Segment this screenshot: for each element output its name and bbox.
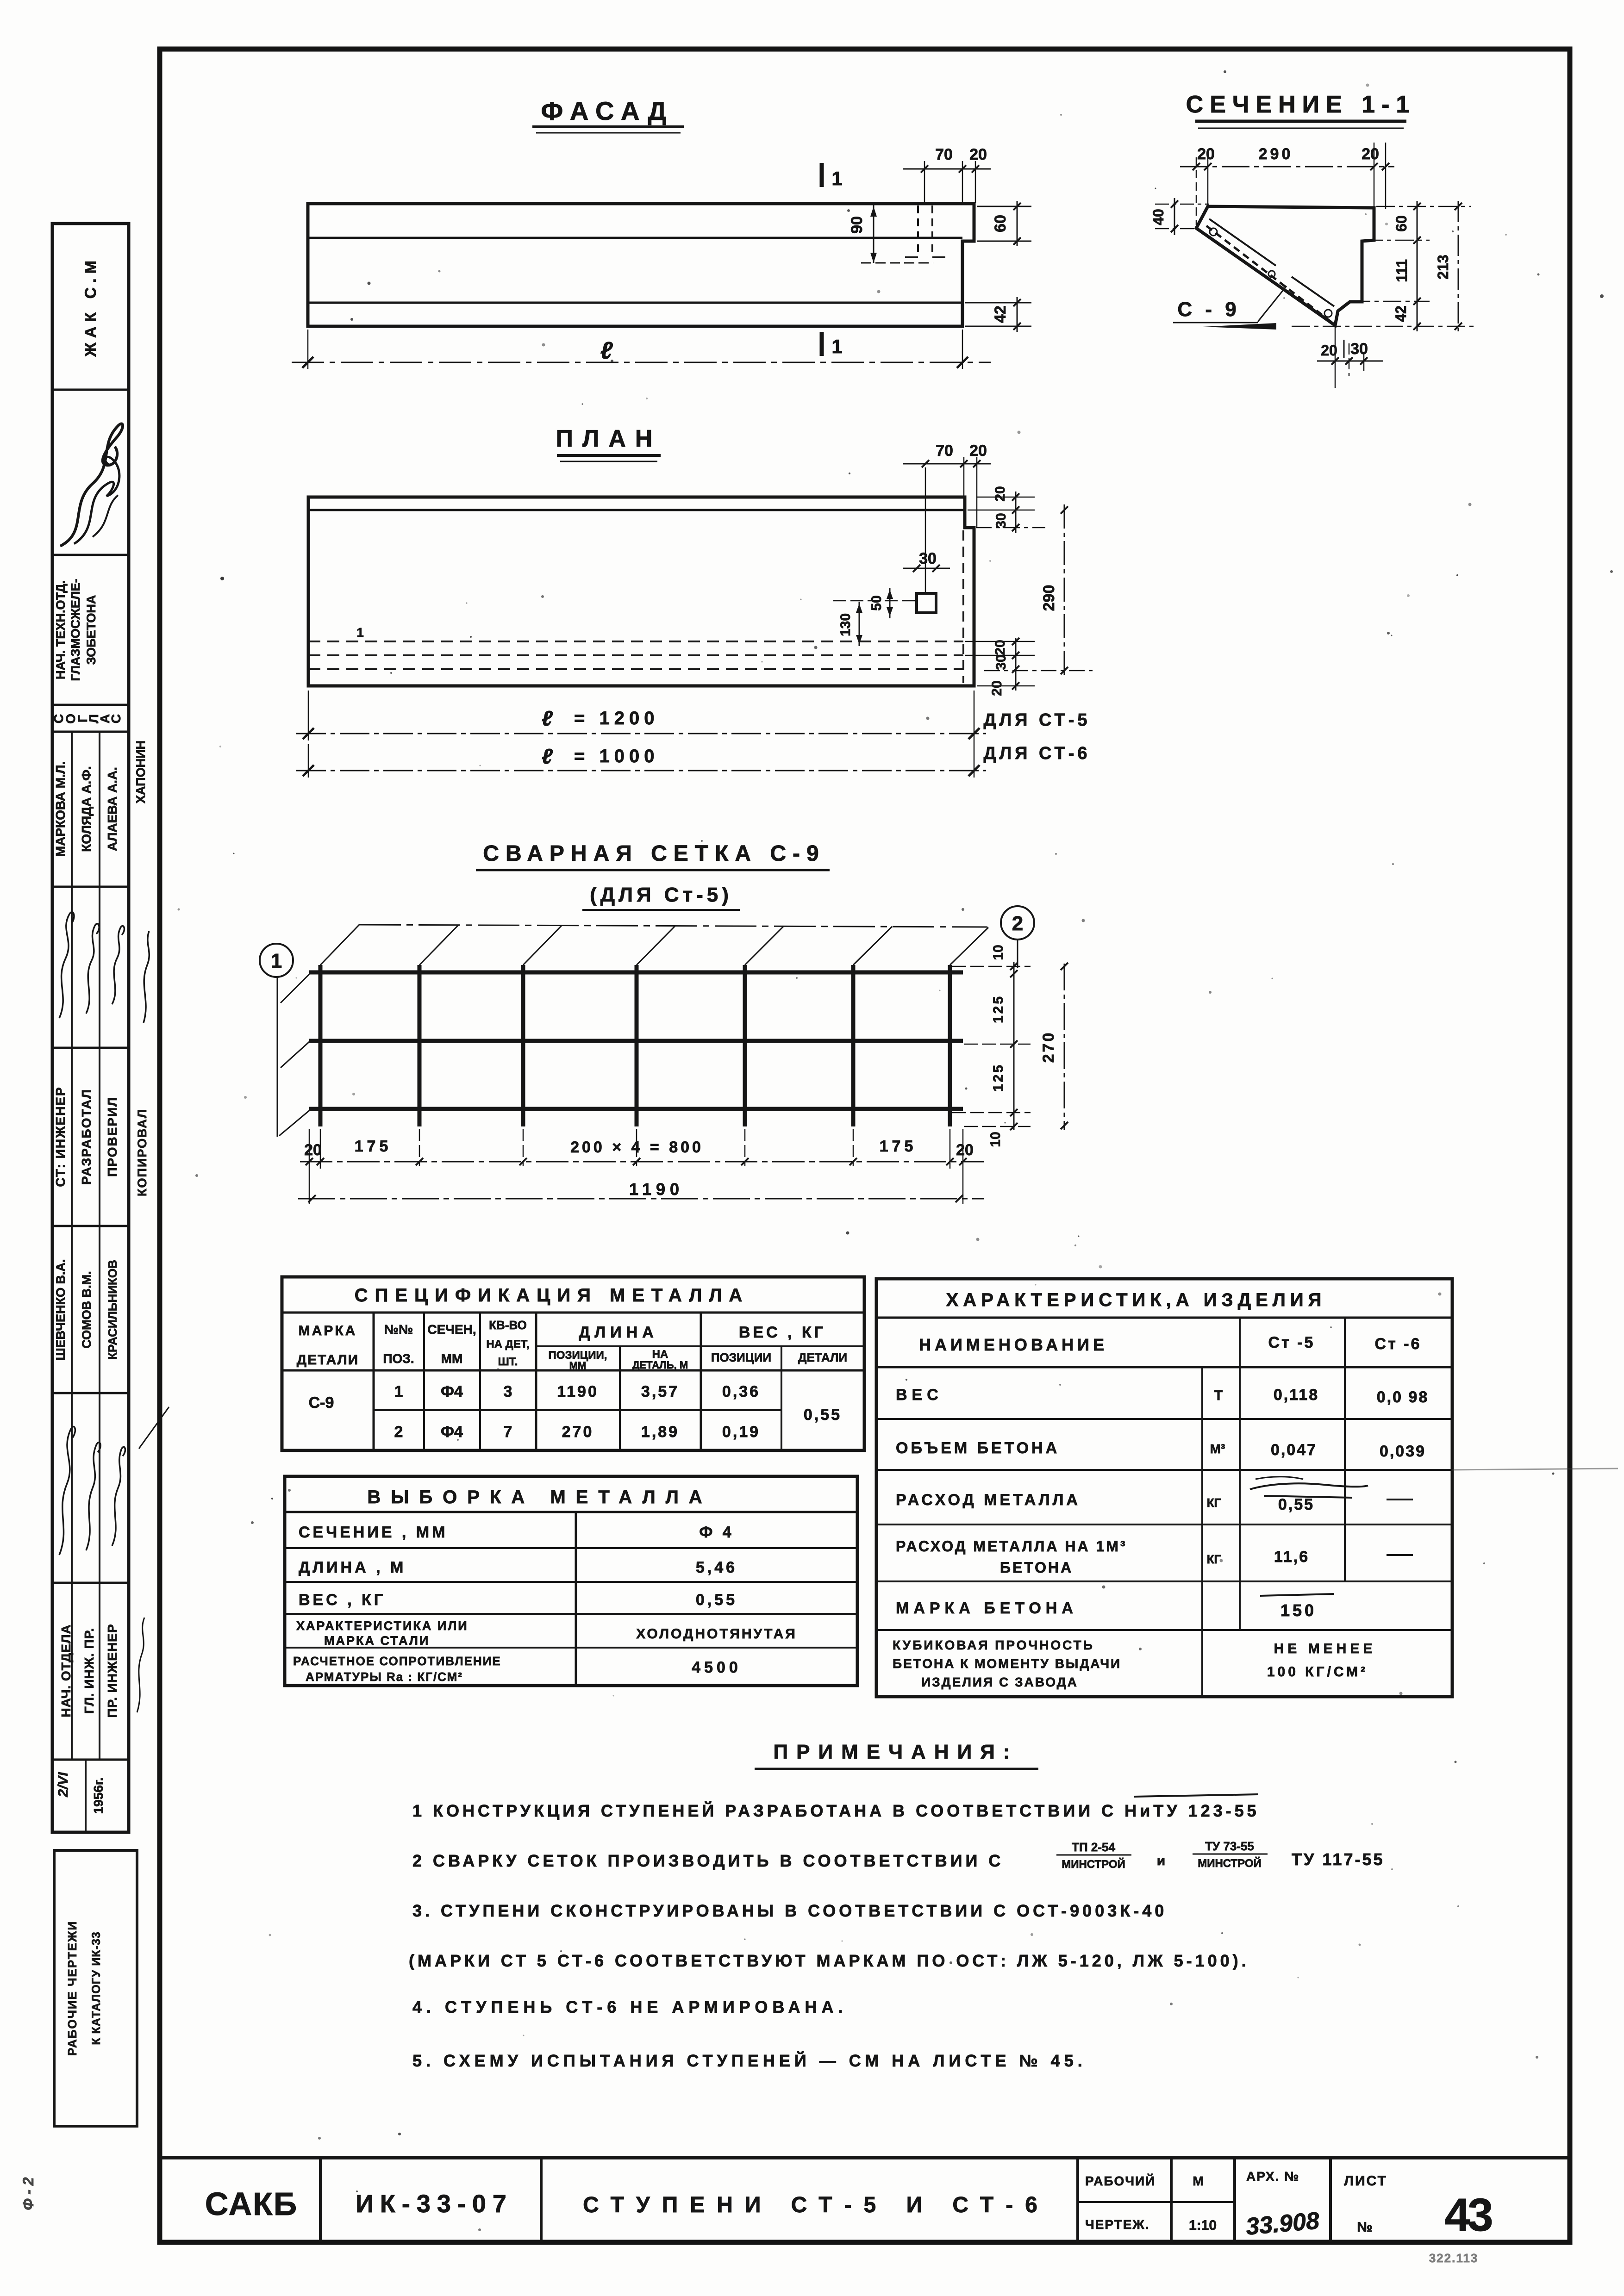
svg-text:РАЗРАБОТАЛ: РАЗРАБОТАЛ (79, 1089, 94, 1185)
svg-text:3. СТУПЕНИ СКОНСТРУИРОВАНЫ: 3. СТУПЕНИ СКОНСТРУИРОВАНЫ В СООТВЕТСТВИ… (412, 1901, 1167, 1920)
svg-text:ИЗДЕЛИЯ С ЗАВОДА: ИЗДЕЛИЯ С ЗАВОДА (921, 1675, 1078, 1689)
svg-text:и: и (1157, 1853, 1165, 1868)
svg-text:СПЕЦИФИКАЦИЯ МЕТАЛЛА: СПЕЦИФИКАЦИЯ МЕТАЛЛА (355, 1285, 750, 1306)
svg-text:КВ-ВО: КВ-ВО (489, 1318, 527, 1332)
svg-text:20: 20 (989, 680, 1005, 696)
svg-text:1,89: 1,89 (641, 1423, 679, 1441)
svg-text:40: 40 (1150, 209, 1167, 225)
svg-text:С - 9: С - 9 (1177, 298, 1240, 321)
svg-text:Ф - 2: Ф - 2 (20, 2177, 37, 2210)
svg-text:К КАТАЛОГУ ИК-33: К КАТАЛОГУ ИК-33 (90, 1931, 103, 2045)
svg-text:10: 10 (988, 1132, 1003, 1147)
svg-text:1: 1 (394, 1383, 403, 1400)
svg-text:ДЛИНА , М: ДЛИНА , М (299, 1559, 406, 1576)
svg-text:МИНСТРОЙ: МИНСТРОЙ (1198, 1857, 1262, 1870)
svg-text:30: 30 (993, 654, 1009, 670)
svg-text:20: 20 (993, 640, 1008, 655)
svg-text:ЛИСТ: ЛИСТ (1344, 2173, 1387, 2189)
svg-text:ТП 2-54: ТП 2-54 (1072, 1840, 1115, 1854)
svg-text:Ст -5: Ст -5 (1268, 1334, 1315, 1351)
svg-text:20: 20 (969, 442, 987, 460)
svg-text:60: 60 (1393, 215, 1410, 232)
svg-text:КРАСИЛЬНИКОВ: КРАСИЛЬНИКОВ (106, 1260, 119, 1360)
svg-text:70: 70 (935, 146, 953, 163)
svg-text:Ф 4: Ф 4 (699, 1524, 734, 1541)
svg-text:213: 213 (1435, 255, 1451, 279)
svg-text:3,57: 3,57 (641, 1383, 679, 1400)
svg-text:КУБИКОВАЯ ПРОЧНОСТЬ: КУБИКОВАЯ ПРОЧНОСТЬ (893, 1638, 1094, 1652)
svg-text:1190: 1190 (557, 1383, 599, 1400)
svg-text:1190: 1190 (629, 1180, 684, 1199)
svg-text:ГЛ. ИНЖ. ПР.: ГЛ. ИНЖ. ПР. (82, 1628, 96, 1714)
svg-text:(ДЛЯ Ст-5): (ДЛЯ Ст-5) (590, 884, 732, 906)
svg-text:20: 20 (1321, 342, 1337, 359)
svg-text:Ст -6: Ст -6 (1375, 1335, 1422, 1353)
svg-text:0,19: 0,19 (722, 1423, 760, 1441)
svg-text:42: 42 (992, 305, 1009, 323)
svg-text:2 СВАРКУ СЕТОК ПРОИЗВОДИТЬ: 2 СВАРКУ СЕТОК ПРОИЗВОДИТЬ В СООТВЕТСТВИ… (412, 1851, 1004, 1870)
svg-text:НЕ МЕНЕЕ: НЕ МЕНЕЕ (1274, 1641, 1376, 1656)
svg-text:ИК-33-07: ИК-33-07 (356, 2190, 513, 2218)
svg-text:= 1200: = 1200 (574, 708, 659, 728)
svg-text:С-9: С-9 (309, 1394, 334, 1412)
svg-text:ПЛАН: ПЛАН (556, 425, 662, 452)
svg-text:СОМОВ В.М.: СОМОВ В.М. (80, 1271, 94, 1348)
svg-text:ХАРАКТЕРИСТИКА ИЛИ: ХАРАКТЕРИСТИКА ИЛИ (296, 1619, 468, 1633)
svg-text:125: 125 (991, 995, 1006, 1023)
svg-text:БЕТОНА К МОМЕНТУ ВЫДАЧИ: БЕТОНА К МОМЕНТУ ВЫДАЧИ (893, 1656, 1121, 1671)
svg-text:ТУ 117-55: ТУ 117-55 (1292, 1850, 1385, 1869)
svg-text:5,46: 5,46 (696, 1559, 737, 1576)
svg-text:0,36: 0,36 (722, 1383, 760, 1400)
svg-text:43: 43 (1444, 2189, 1492, 2241)
svg-text:4500: 4500 (692, 1659, 742, 1676)
svg-text:50: 50 (869, 595, 884, 610)
svg-text:ЗОБЕТОНА: ЗОБЕТОНА (84, 595, 98, 665)
svg-text:С: С (109, 714, 123, 723)
svg-text:42: 42 (1393, 305, 1409, 322)
svg-text:НАЧ. ТЕХН.ОТД.: НАЧ. ТЕХН.ОТД. (54, 580, 68, 679)
svg-text:100 КГ/СМ²: 100 КГ/СМ² (1267, 1664, 1368, 1680)
svg-text:ℓ: ℓ (542, 706, 553, 730)
svg-text:ШТ.: ШТ. (498, 1356, 518, 1368)
svg-text:ЧЕРТЕЖ.: ЧЕРТЕЖ. (1085, 2217, 1150, 2232)
svg-text:РАБОЧИЕ ЧЕРТЕЖИ: РАБОЧИЕ ЧЕРТЕЖИ (65, 1921, 79, 2056)
svg-text:МАРКА БЕТОНА: МАРКА БЕТОНА (896, 1599, 1078, 1617)
svg-text:РАБОЧИЙ: РАБОЧИЙ (1085, 2173, 1156, 2188)
svg-text:70: 70 (936, 442, 953, 460)
svg-text:СЕЧЕНИЕ , ММ: СЕЧЕНИЕ , ММ (299, 1524, 448, 1541)
svg-text:КГ: КГ (1207, 1496, 1221, 1510)
svg-text:КОПИРОВАЛ: КОПИРОВАЛ (135, 1108, 149, 1196)
svg-text:0,047: 0,047 (1271, 1441, 1317, 1459)
svg-text:№: № (1357, 2220, 1372, 2235)
svg-text:СЕЧЕН,: СЕЧЕН, (427, 1322, 476, 1337)
svg-text:290: 290 (1040, 585, 1058, 611)
svg-text:1: 1 (271, 950, 282, 972)
svg-text:130: 130 (838, 613, 853, 636)
svg-text:2: 2 (394, 1423, 403, 1441)
svg-text:М³: М³ (1210, 1442, 1225, 1456)
svg-text:АРМАТУРЫ Rа : КГ/СМ²: АРМАТУРЫ Rа : КГ/СМ² (306, 1670, 463, 1684)
svg-text:ПР. ИНЖЕНЕР: ПР. ИНЖЕНЕР (105, 1624, 119, 1717)
svg-text:5. СХЕМУ ИСПЫТАНИЯ СТУПЕНЕ: 5. СХЕМУ ИСПЫТАНИЯ СТУПЕНЕЙ — СМ НА ЛИСТ… (412, 2051, 1087, 2070)
svg-text:270: 270 (562, 1423, 594, 1441)
svg-text:ФАСАД: ФАСАД (541, 96, 674, 125)
svg-text:1: 1 (831, 168, 842, 189)
svg-text:0,55: 0,55 (804, 1406, 842, 1424)
svg-text:270: 270 (1040, 1031, 1057, 1063)
svg-text:ХАПОНИН: ХАПОНИН (134, 740, 148, 803)
svg-text:ТУ 73-55: ТУ 73-55 (1205, 1839, 1254, 1853)
svg-text:175: 175 (880, 1138, 917, 1155)
svg-text:ШЕВЧЕНКО В.А.: ШЕВЧЕНКО В.А. (54, 1259, 68, 1360)
svg-text:СТУПЕНИ СТ-5 И СТ-6: СТУПЕНИ СТ-5 И СТ-6 (583, 2193, 1049, 2217)
svg-text:ДЕТАЛЬ, М: ДЕТАЛЬ, М (632, 1359, 688, 1371)
svg-text:1 КОНСТРУКЦИЯ СТУПЕНЕЙ РАЗРА: 1 КОНСТРУКЦИЯ СТУПЕНЕЙ РАЗРАБОТАНА В СОО… (412, 1801, 1260, 1820)
svg-text:20: 20 (956, 1141, 974, 1159)
svg-text:322.113: 322.113 (1429, 2251, 1479, 2265)
svg-text:НАИМЕНОВАНИЕ: НАИМЕНОВАНИЕ (919, 1335, 1108, 1354)
svg-text:Ф4: Ф4 (441, 1423, 463, 1441)
svg-text:1: 1 (356, 625, 364, 640)
svg-text:ПОЗ.: ПОЗ. (383, 1351, 414, 1366)
svg-text:АЛАЕВА А.А.: АЛАЕВА А.А. (105, 767, 119, 851)
svg-text:ВЫБОРКА МЕТАЛЛА: ВЫБОРКА МЕТАЛЛА (367, 1487, 712, 1507)
svg-text:7: 7 (504, 1423, 512, 1441)
svg-text:0,039: 0,039 (1380, 1443, 1426, 1460)
svg-text:1956г.: 1956г. (91, 1778, 106, 1814)
svg-text:10: 10 (991, 945, 1006, 960)
svg-text:1:10: 1:10 (1189, 2218, 1217, 2233)
svg-text:КГ: КГ (1207, 1552, 1221, 1566)
svg-text:ДЕТАЛИ: ДЕТАЛИ (798, 1350, 847, 1364)
svg-text:150: 150 (1280, 1601, 1317, 1620)
svg-text:20: 20 (304, 1141, 322, 1159)
svg-text:0,118: 0,118 (1274, 1386, 1319, 1404)
svg-text:111: 111 (1393, 259, 1410, 282)
svg-text:МИНСТРОЙ: МИНСТРОЙ (1062, 1858, 1125, 1871)
svg-text:0,55: 0,55 (1278, 1496, 1314, 1513)
svg-text:ВЕС , КГ: ВЕС , КГ (739, 1324, 826, 1341)
svg-text:НАЧ. ОТДЕЛА: НАЧ. ОТДЕЛА (59, 1624, 73, 1717)
svg-text:ХАРАКТЕРИСТИК,А ИЗДЕЛИЯ: ХАРАКТЕРИСТИК,А ИЗДЕЛИЯ (946, 1290, 1326, 1310)
svg-text:0,55: 0,55 (696, 1591, 737, 1609)
svg-text:СТ: ИНЖЕНЕР: СТ: ИНЖЕНЕР (53, 1086, 68, 1187)
svg-text:20: 20 (993, 486, 1008, 501)
svg-text:СЕЧЕНИЕ 1-1: СЕЧЕНИЕ 1-1 (1186, 91, 1416, 118)
svg-text:НА: НА (652, 1348, 668, 1361)
svg-text:125: 125 (991, 1063, 1006, 1092)
svg-text:ММ: ММ (441, 1351, 463, 1366)
svg-text:3: 3 (504, 1383, 512, 1400)
svg-text:ВЕС: ВЕС (896, 1386, 943, 1404)
svg-text:ГЛАЗМОСЖЕЛЕ-: ГЛАЗМОСЖЕЛЕ- (69, 579, 82, 681)
svg-text:РАСХОД МЕТАЛЛА: РАСХОД МЕТАЛЛА (896, 1491, 1081, 1509)
svg-text:2/VI: 2/VI (56, 1772, 71, 1798)
svg-text:(МАРКИ СТ 5 СТ-6 СООТВЕТСТ: (МАРКИ СТ 5 СТ-6 СООТВЕТСТВУЮТ МАРКАМ ПО… (409, 1951, 1249, 1970)
svg-text:ММ: ММ (569, 1360, 587, 1371)
svg-text:ДЛИНА: ДЛИНА (579, 1324, 658, 1341)
svg-text:11,6: 11,6 (1274, 1548, 1309, 1566)
svg-text:ЖАК С.М: ЖАК С.М (82, 256, 100, 357)
svg-text:4. СТУПЕНЬ СТ-6 НЕ АРМИР: 4. СТУПЕНЬ СТ-6 НЕ АРМИРОВАНА. (412, 1997, 848, 2016)
svg-text:90: 90 (848, 216, 866, 234)
svg-text:20: 20 (1197, 145, 1215, 163)
svg-text:2: 2 (1012, 912, 1023, 935)
svg-text:ПРИМЕЧАНИЯ:: ПРИМЕЧАНИЯ: (774, 1741, 1018, 1763)
svg-text:30: 30 (1350, 340, 1368, 358)
svg-text:БЕТОНА: БЕТОНА (1000, 1559, 1073, 1576)
svg-text:МАРКА: МАРКА (299, 1323, 357, 1338)
svg-text:175: 175 (355, 1138, 392, 1155)
svg-text:30: 30 (919, 550, 937, 567)
svg-text:290: 290 (1259, 145, 1293, 163)
svg-text:= 1000: = 1000 (574, 746, 659, 766)
svg-text:РАСЧЕТНОЕ СОПРОТИВЛЕНИЕ: РАСЧЕТНОЕ СОПРОТИВЛЕНИЕ (293, 1654, 501, 1668)
svg-text:60: 60 (992, 215, 1009, 232)
svg-text:МАРКА СТАЛИ: МАРКА СТАЛИ (324, 1634, 430, 1648)
svg-text:ℓ: ℓ (542, 744, 553, 768)
svg-text:200 × 4 = 800: 200 × 4 = 800 (570, 1139, 704, 1156)
svg-text:1: 1 (831, 336, 842, 357)
svg-text:М: М (1193, 2174, 1203, 2188)
svg-text:ДЛЯ СТ-5: ДЛЯ СТ-5 (983, 710, 1090, 730)
svg-text:ДЕТАЛИ: ДЕТАЛИ (297, 1352, 359, 1368)
svg-text:АРХ. №: АРХ. № (1246, 2169, 1299, 2184)
svg-text:МАРКОВА М.Л.: МАРКОВА М.Л. (53, 761, 68, 857)
svg-text:ПРОВЕРИЛ: ПРОВЕРИЛ (105, 1096, 119, 1177)
svg-text:30: 30 (993, 513, 1009, 528)
svg-text:САКБ: САКБ (205, 2186, 298, 2222)
svg-text:СВАРНАЯ СЕТКА С-9: СВАРНАЯ СЕТКА С-9 (483, 841, 825, 866)
svg-text:№№: №№ (384, 1322, 413, 1337)
svg-text:ОБЪЕМ БЕТОНА: ОБЪЕМ БЕТОНА (896, 1439, 1060, 1457)
svg-text:Ф4: Ф4 (441, 1383, 463, 1400)
svg-text:Т: Т (1214, 1388, 1223, 1403)
svg-text:РАСХОД МЕТАЛЛА НА 1М³: РАСХОД МЕТАЛЛА НА 1М³ (896, 1538, 1127, 1555)
svg-text:КОЛЯДА А.Ф.: КОЛЯДА А.Ф. (79, 766, 94, 852)
svg-text:НА ДЕТ,: НА ДЕТ, (486, 1338, 529, 1350)
svg-text:33.908: 33.908 (1245, 2207, 1321, 2240)
svg-text:ДЛЯ СТ-6: ДЛЯ СТ-6 (983, 744, 1090, 763)
svg-text:0,0 98: 0,0 98 (1377, 1388, 1429, 1406)
svg-text:ХОЛОДНОТЯНУТАЯ: ХОЛОДНОТЯНУТАЯ (636, 1626, 797, 1642)
svg-text:ПОЗИЦИИ: ПОЗИЦИИ (711, 1350, 771, 1364)
svg-text:ВЕС , КГ: ВЕС , КГ (299, 1591, 386, 1609)
svg-text:20: 20 (1362, 145, 1379, 163)
svg-text:20: 20 (969, 146, 987, 163)
